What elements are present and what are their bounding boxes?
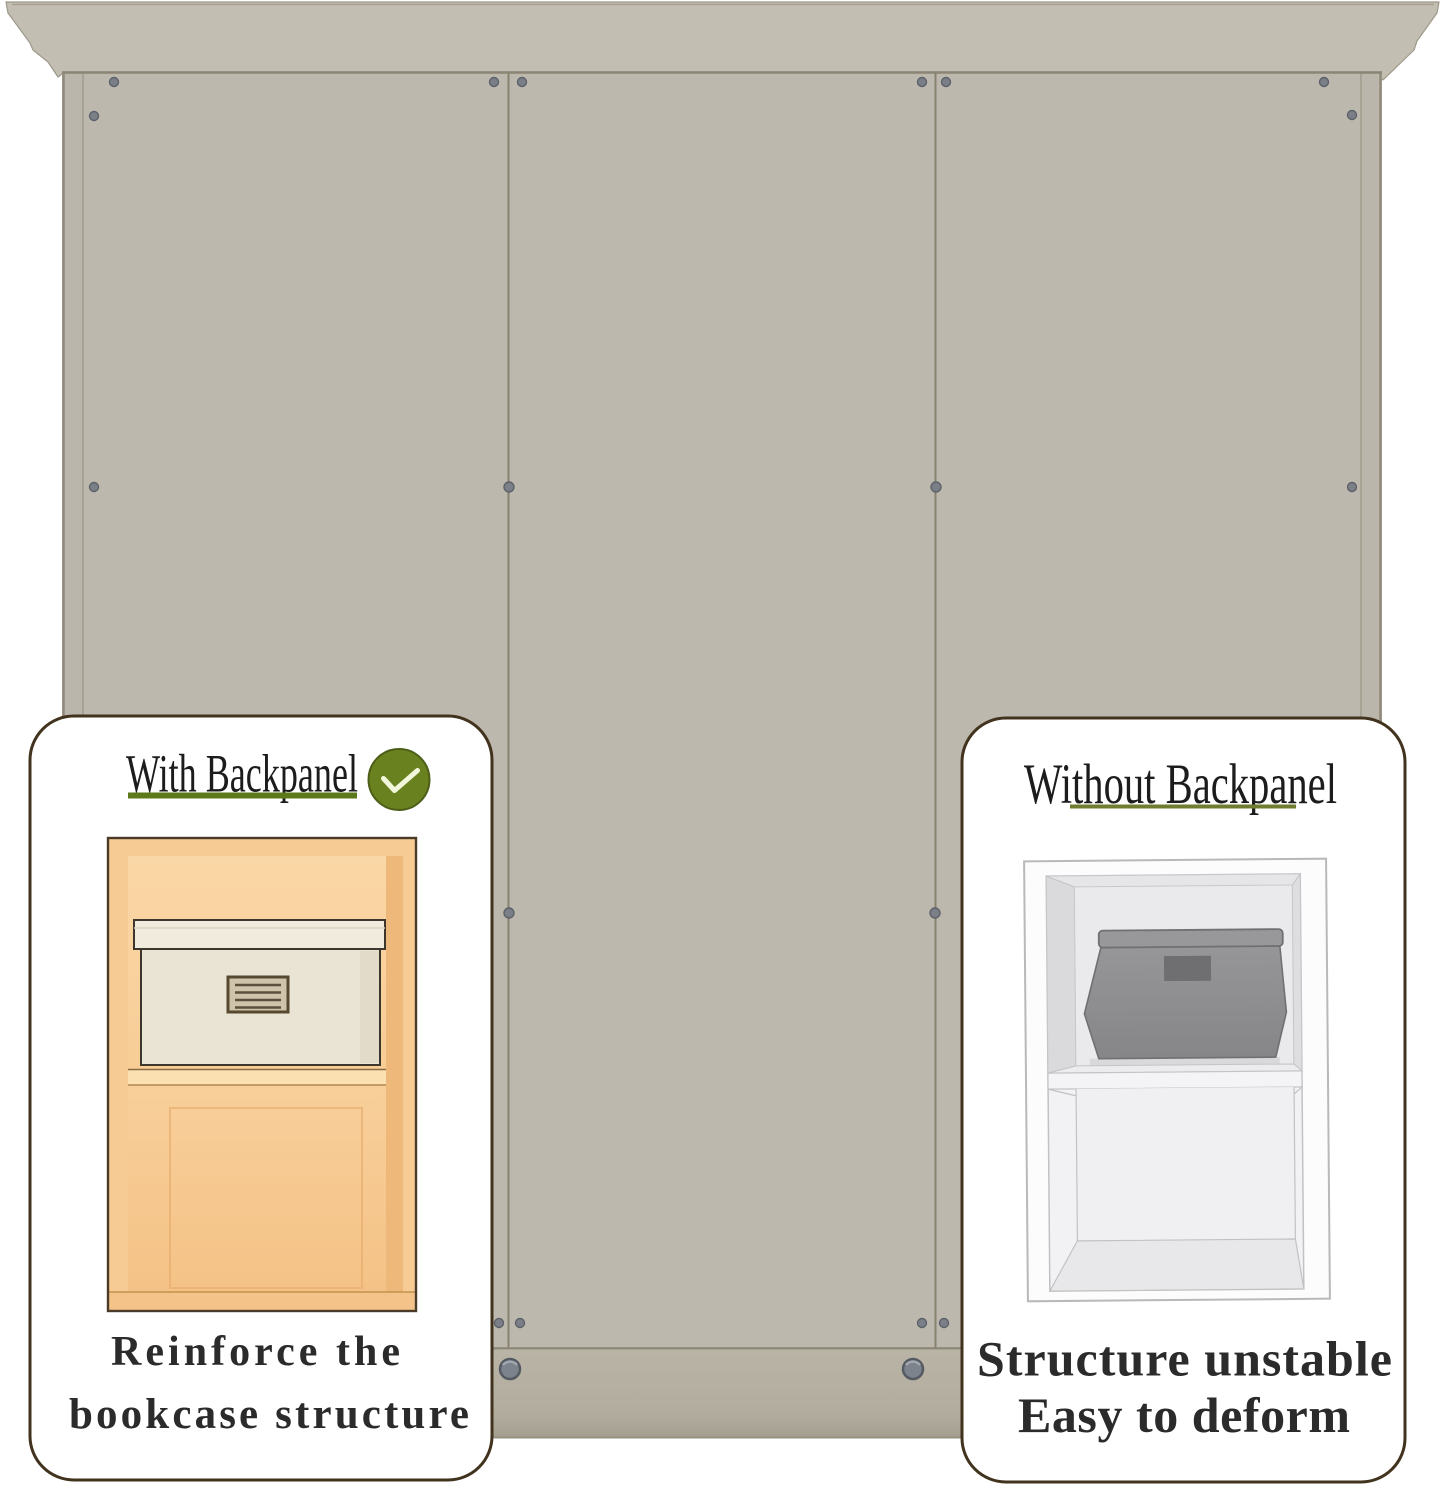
svg-text:Reinforce the: Reinforce the xyxy=(111,1329,400,1375)
svg-text:bookcase structure: bookcase structure xyxy=(69,1391,469,1438)
svg-text:Easy to deform: Easy to deform xyxy=(1018,1387,1350,1443)
svg-text:Structure unstable: Structure unstable xyxy=(977,1331,1392,1387)
